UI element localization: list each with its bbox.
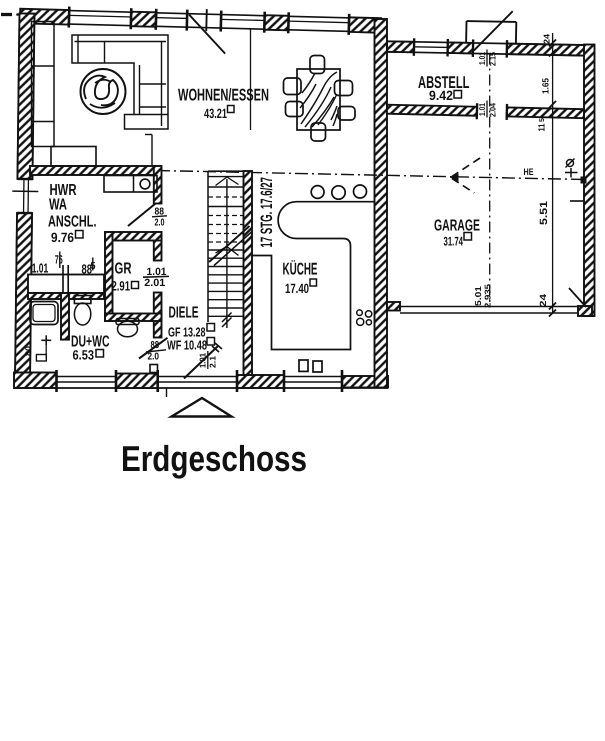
svg-text:2.0: 2.0 (155, 218, 165, 229)
svg-text:24: 24 (538, 294, 548, 307)
svg-text:17 STG. 17.6/27: 17 STG. 17.6/27 (258, 177, 276, 248)
svg-text:1.01: 1.01 (32, 261, 49, 276)
svg-text:11: 11 (537, 124, 547, 132)
svg-text:2.01: 2.01 (144, 277, 165, 289)
svg-text:88: 88 (151, 340, 160, 351)
svg-text:GARAGE: GARAGE (434, 218, 480, 235)
svg-text:1.01: 1.01 (477, 52, 487, 65)
svg-text:WA: WA (49, 197, 67, 214)
svg-text:43.21: 43.21 (204, 106, 227, 121)
svg-text:5.51: 5.51 (538, 201, 550, 225)
svg-text:31.74: 31.74 (444, 235, 464, 249)
svg-text:2.15: 2.15 (488, 52, 498, 66)
svg-text:2.0: 2.0 (148, 352, 160, 363)
svg-text:6.53: 6.53 (73, 348, 95, 363)
svg-text:2.04: 2.04 (488, 103, 498, 117)
svg-text:2.1: 2.1 (208, 356, 218, 368)
svg-text:GR: GR (115, 261, 132, 278)
svg-text:1.65: 1.65 (541, 78, 551, 94)
svg-text:1.01: 1.01 (198, 353, 208, 368)
svg-text:WF 10.48: WF 10.48 (167, 338, 207, 353)
svg-text:9.42: 9.42 (429, 88, 453, 103)
svg-text:24: 24 (542, 34, 552, 44)
svg-text:2.91: 2.91 (112, 279, 131, 294)
svg-text:5.01: 5.01 (473, 286, 483, 306)
svg-text:Erdgeschoss: Erdgeschoss (121, 438, 307, 479)
svg-text:76: 76 (55, 253, 63, 267)
svg-text:1.01: 1.01 (477, 103, 487, 116)
svg-text:DIELE: DIELE (169, 305, 199, 322)
svg-text:2.935: 2.935 (483, 284, 493, 308)
svg-text:5: 5 (539, 118, 546, 122)
svg-text:ANSCHL.: ANSCHL. (48, 214, 97, 231)
svg-text:WOHNEN/ESSEN: WOHNEN/ESSEN (178, 86, 269, 105)
svg-text:KÜCHE: KÜCHE (283, 260, 318, 279)
svg-text:HE: HE (524, 167, 534, 178)
svg-text:9.76: 9.76 (51, 230, 74, 245)
svg-text:17.40: 17.40 (285, 281, 309, 296)
svg-text:80: 80 (24, 346, 33, 356)
